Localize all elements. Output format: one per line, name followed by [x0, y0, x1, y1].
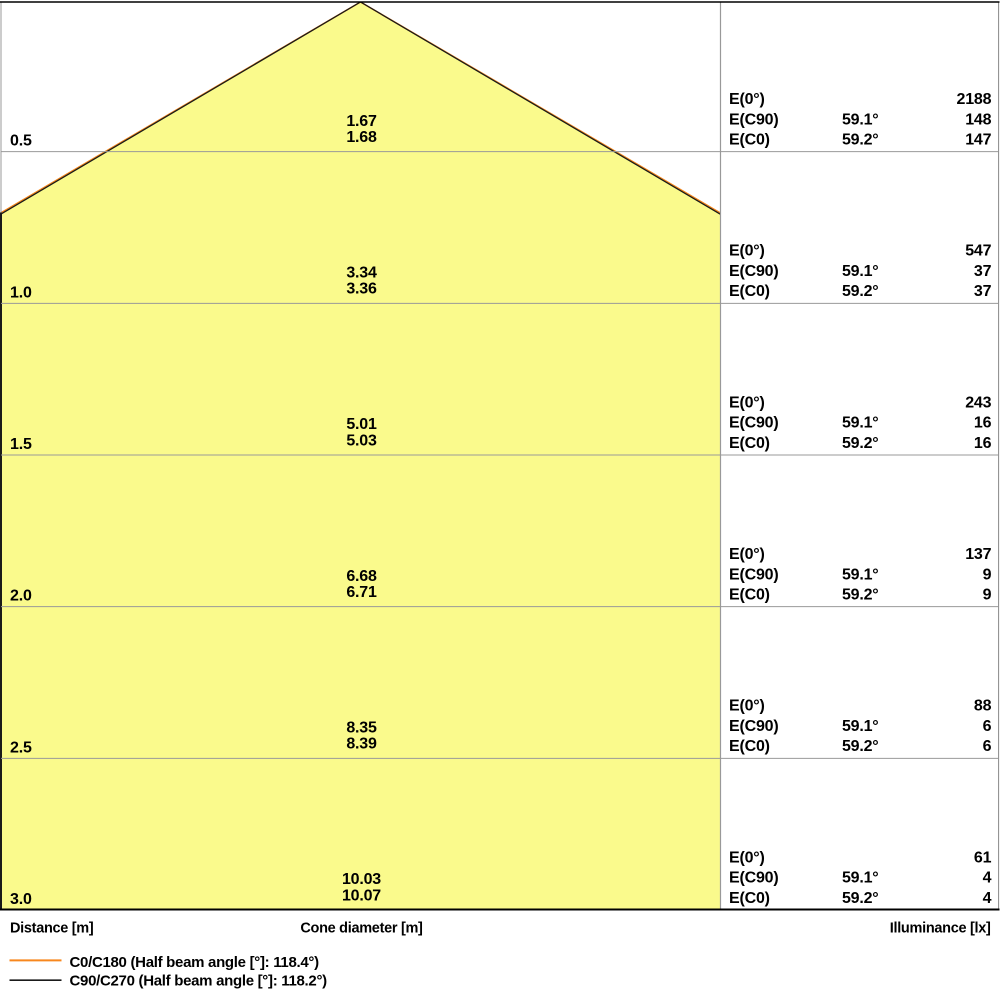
svg-text:59.1°: 59.1° — [842, 870, 879, 887]
svg-text:148: 148 — [965, 111, 991, 128]
svg-text:59.1°: 59.1° — [842, 111, 879, 128]
svg-text:Cone diameter [m]: Cone diameter [m] — [300, 921, 423, 937]
svg-text:E(0°): E(0°) — [729, 698, 765, 715]
svg-text:6.71: 6.71 — [346, 584, 377, 601]
svg-text:E(C90): E(C90) — [729, 566, 778, 583]
svg-text:E(0°): E(0°) — [729, 394, 765, 411]
svg-text:37: 37 — [974, 263, 992, 280]
svg-text:E(C0): E(C0) — [729, 132, 770, 149]
svg-text:137: 137 — [965, 546, 991, 563]
svg-text:59.1°: 59.1° — [842, 566, 879, 583]
svg-text:E(C90): E(C90) — [729, 263, 778, 280]
svg-text:8.39: 8.39 — [346, 736, 377, 753]
svg-text:147: 147 — [965, 132, 991, 149]
svg-text:5.01: 5.01 — [346, 416, 377, 433]
svg-text:E(0°): E(0°) — [729, 546, 765, 563]
svg-text:E(C0): E(C0) — [729, 587, 770, 604]
svg-text:59.2°: 59.2° — [842, 283, 879, 300]
svg-text:59.2°: 59.2° — [842, 132, 879, 149]
svg-text:59.2°: 59.2° — [842, 435, 879, 452]
svg-text:6.68: 6.68 — [346, 568, 377, 585]
svg-text:16: 16 — [974, 435, 992, 452]
svg-text:59.1°: 59.1° — [842, 263, 879, 280]
svg-text:C90/C270 (Half beam angle [°]:: C90/C270 (Half beam angle [°]: 118.2°) — [70, 973, 328, 990]
svg-text:2.0: 2.0 — [10, 588, 32, 605]
svg-text:6: 6 — [983, 738, 992, 755]
svg-text:9: 9 — [983, 587, 992, 604]
svg-text:88: 88 — [974, 698, 992, 715]
svg-text:5.03: 5.03 — [346, 432, 377, 449]
svg-text:4: 4 — [983, 890, 992, 907]
svg-text:E(C0): E(C0) — [729, 738, 770, 755]
svg-text:2.5: 2.5 — [10, 739, 32, 756]
svg-text:1.5: 1.5 — [10, 436, 32, 453]
svg-text:2188: 2188 — [957, 91, 992, 108]
svg-text:10.07: 10.07 — [342, 887, 381, 904]
svg-text:3.34: 3.34 — [346, 265, 377, 282]
svg-text:59.2°: 59.2° — [842, 587, 879, 604]
svg-text:6: 6 — [983, 718, 992, 735]
svg-text:3.0: 3.0 — [10, 891, 32, 908]
svg-text:E(0°): E(0°) — [729, 243, 765, 260]
svg-text:E(C90): E(C90) — [729, 415, 778, 432]
svg-text:10.03: 10.03 — [342, 871, 381, 888]
svg-text:59.2°: 59.2° — [842, 890, 879, 907]
svg-text:E(C90): E(C90) — [729, 870, 778, 887]
svg-text:243: 243 — [965, 394, 991, 411]
svg-text:3.36: 3.36 — [346, 281, 377, 298]
svg-text:C0/C180 (Half beam angle [°]:: C0/C180 (Half beam angle [°]: 118.4°) — [70, 954, 320, 971]
svg-text:Illuminance [lx]: Illuminance [lx] — [890, 921, 991, 937]
svg-text:9: 9 — [983, 566, 992, 583]
svg-text:547: 547 — [965, 243, 991, 260]
svg-text:1.67: 1.67 — [346, 113, 377, 130]
svg-text:37: 37 — [974, 283, 992, 300]
svg-text:E(C0): E(C0) — [729, 283, 770, 300]
svg-text:59.1°: 59.1° — [842, 415, 879, 432]
svg-text:Distance [m]: Distance [m] — [10, 921, 94, 937]
svg-text:1.68: 1.68 — [346, 129, 377, 146]
svg-text:8.35: 8.35 — [346, 720, 377, 737]
svg-text:59.2°: 59.2° — [842, 738, 879, 755]
svg-text:4: 4 — [983, 870, 992, 887]
svg-text:61: 61 — [974, 849, 992, 866]
svg-text:E(0°): E(0°) — [729, 849, 765, 866]
svg-text:E(C0): E(C0) — [729, 435, 770, 452]
svg-text:59.1°: 59.1° — [842, 718, 879, 735]
svg-text:E(C90): E(C90) — [729, 111, 778, 128]
svg-text:1.0: 1.0 — [10, 284, 32, 301]
svg-text:E(C0): E(C0) — [729, 890, 770, 907]
svg-text:E(C90): E(C90) — [729, 718, 778, 735]
svg-text:0.5: 0.5 — [10, 133, 32, 150]
svg-text:E(0°): E(0°) — [729, 91, 765, 108]
svg-text:16: 16 — [974, 415, 992, 432]
